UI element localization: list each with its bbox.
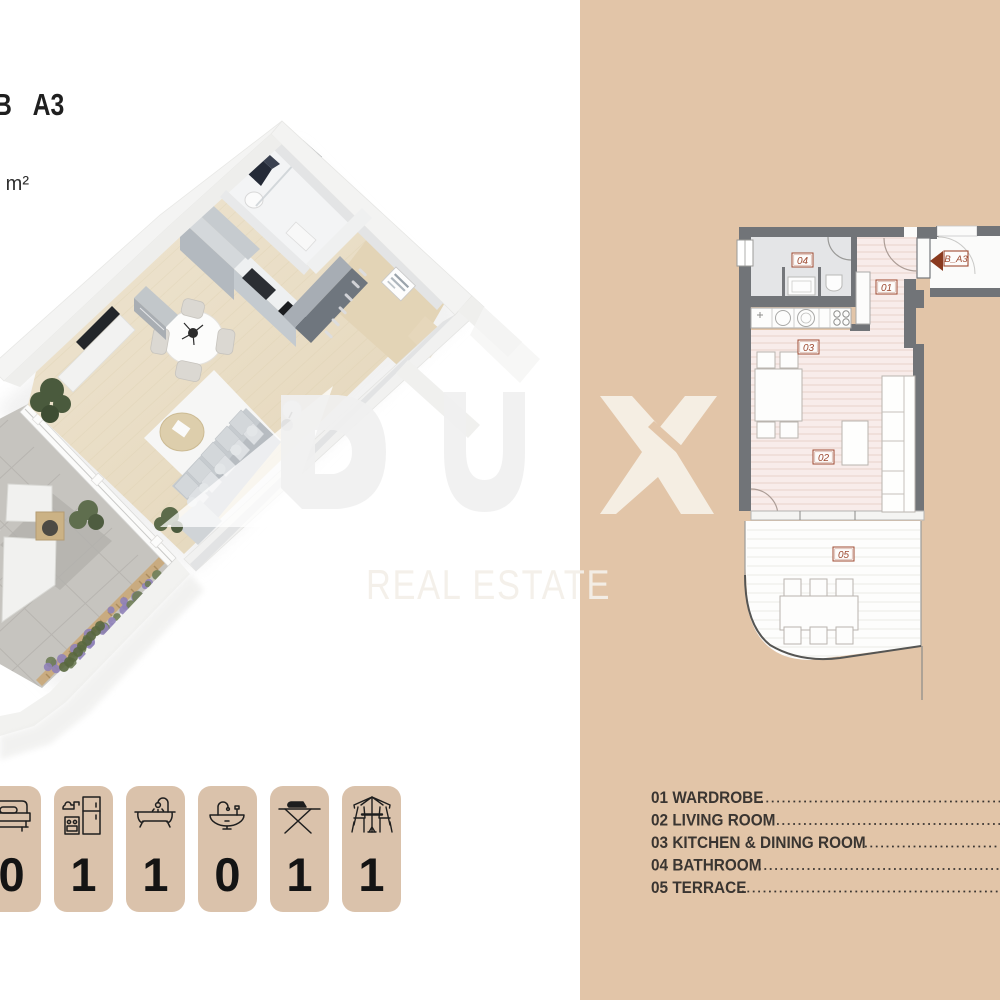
svg-text:04 BATHROOM: 04 BATHROOM — [651, 857, 761, 875]
svg-text:1: 1 — [142, 848, 168, 901]
svg-text:1: 1 — [286, 848, 312, 901]
svg-text:02: 02 — [818, 453, 830, 464]
svg-text:B_A3: B_A3 — [944, 254, 968, 265]
svg-text:01: 01 — [881, 283, 892, 294]
svg-text:REAL ESTATE: REAL ESTATE — [366, 562, 611, 609]
svg-text:03: 03 — [803, 343, 815, 354]
svg-text:0: 0 — [214, 848, 240, 901]
svg-text:03 KITCHEN & DINING ROOM: 03 KITCHEN & DINING ROOM — [651, 835, 866, 853]
svg-text:1: 1 — [70, 848, 96, 901]
svg-text:01 WARDROBE: 01 WARDROBE — [651, 790, 763, 808]
svg-text:05 TERRACE: 05 TERRACE — [651, 880, 746, 898]
svg-text:0: 0 — [0, 848, 25, 901]
svg-text:02 LIVING ROOM: 02 LIVING ROOM — [651, 812, 775, 830]
svg-text:1: 1 — [358, 848, 384, 901]
svg-text:04: 04 — [797, 256, 809, 267]
svg-text:B A3: B A3 — [0, 87, 64, 121]
svg-text:05: 05 — [838, 550, 850, 561]
svg-text:5 m²: 5 m² — [0, 173, 29, 195]
